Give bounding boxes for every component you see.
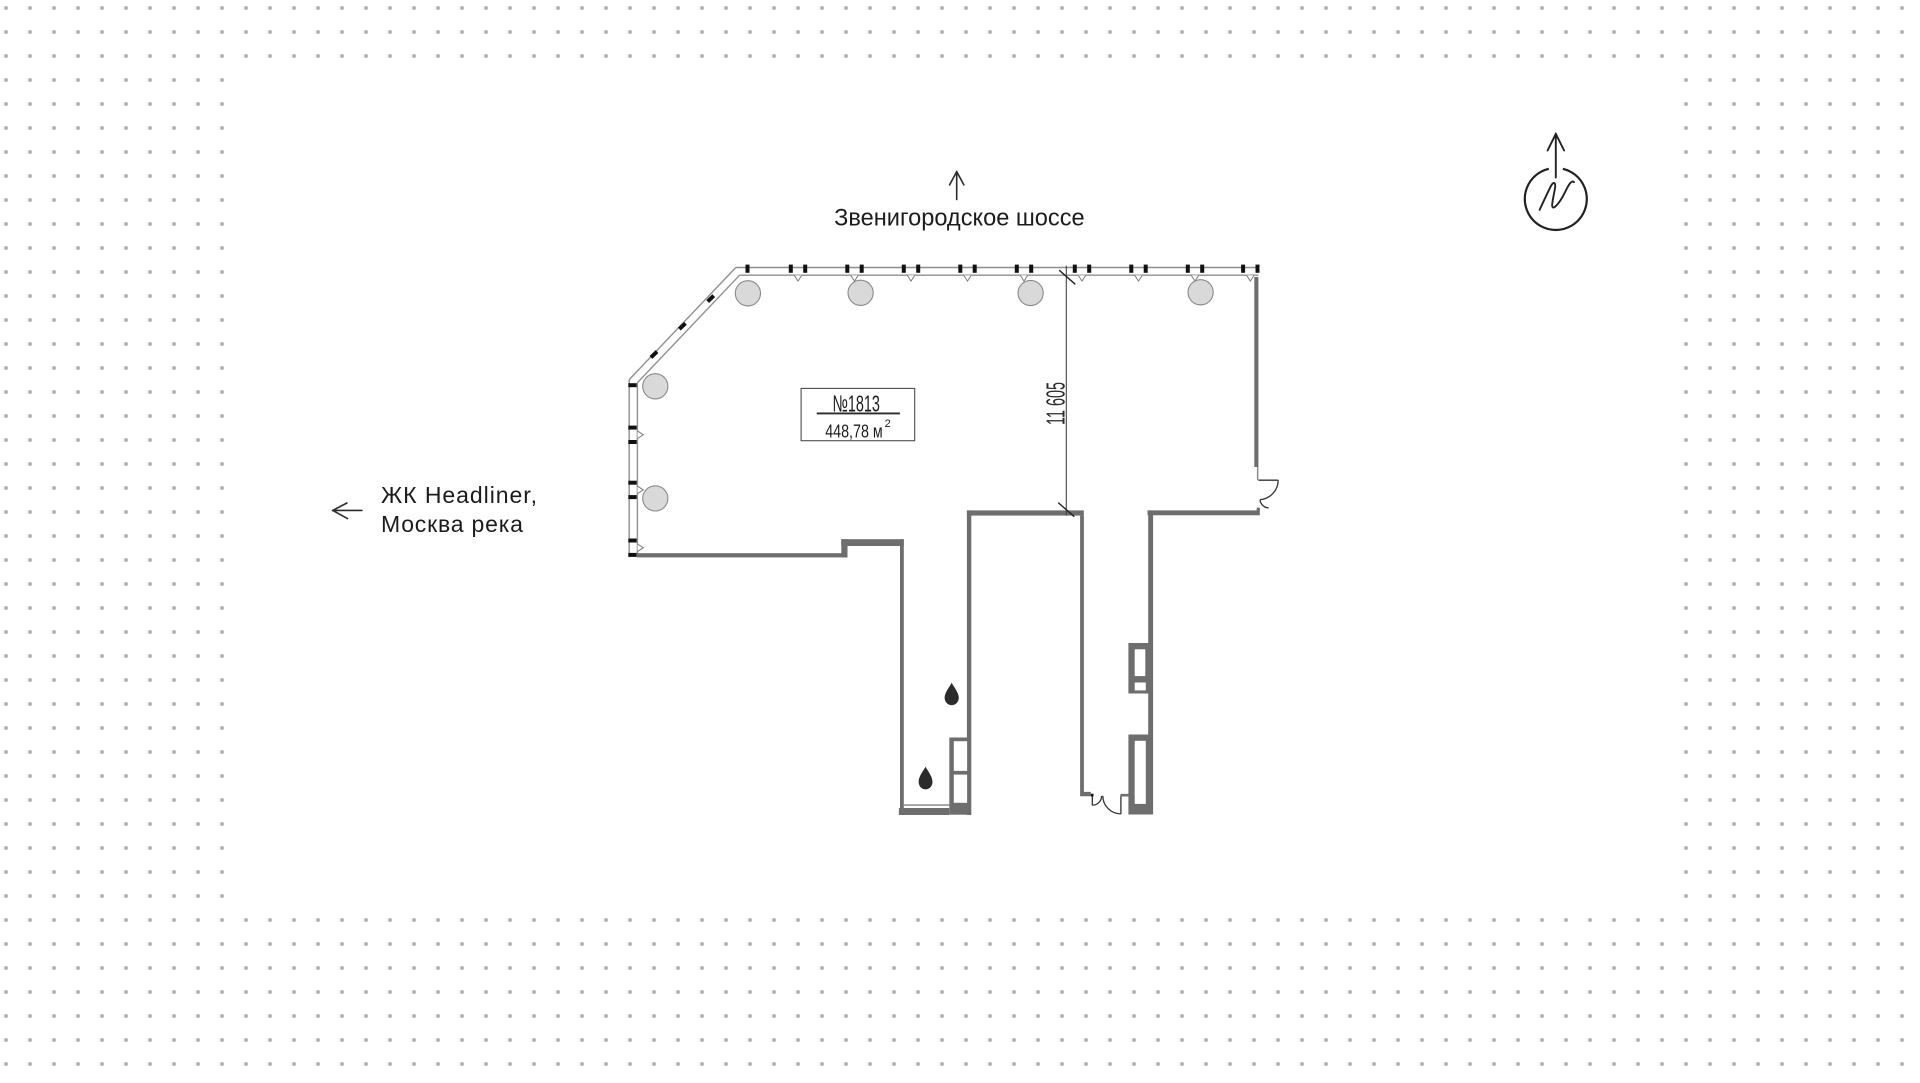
svg-text:448,78 м: 448,78 м xyxy=(825,421,883,442)
svg-text:Москва река: Москва река xyxy=(381,511,524,537)
svg-text:Звенигородское шоссе: Звенигородское шоссе xyxy=(834,206,1085,232)
svg-text:ЖК Headliner,: ЖК Headliner, xyxy=(381,482,538,508)
svg-text:№1813: №1813 xyxy=(832,390,880,416)
svg-text:2: 2 xyxy=(885,418,891,430)
svg-text:11 605: 11 605 xyxy=(1041,382,1071,425)
